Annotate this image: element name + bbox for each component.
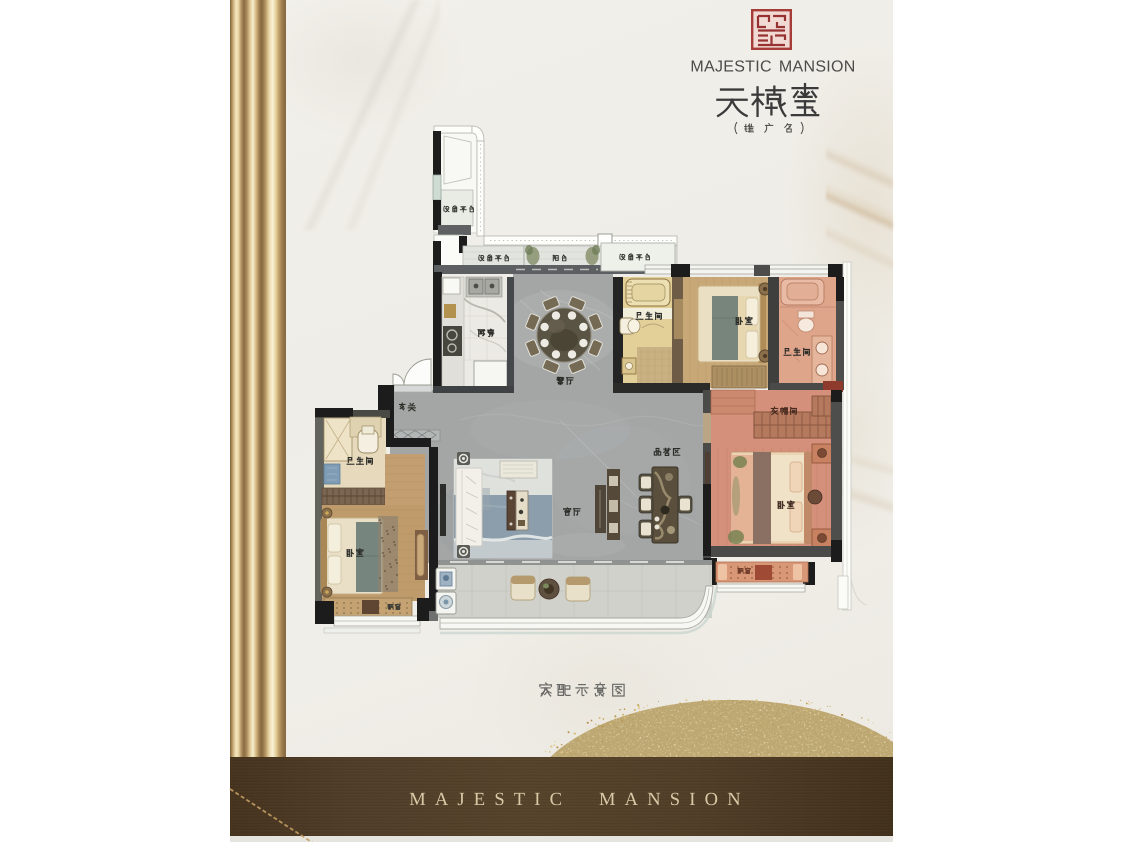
svg-text:MAJESTIC MANSION: MAJESTIC MANSION (409, 790, 750, 810)
svg-text:MAJESTIC MANSION: MAJESTIC MANSION (690, 59, 855, 76)
